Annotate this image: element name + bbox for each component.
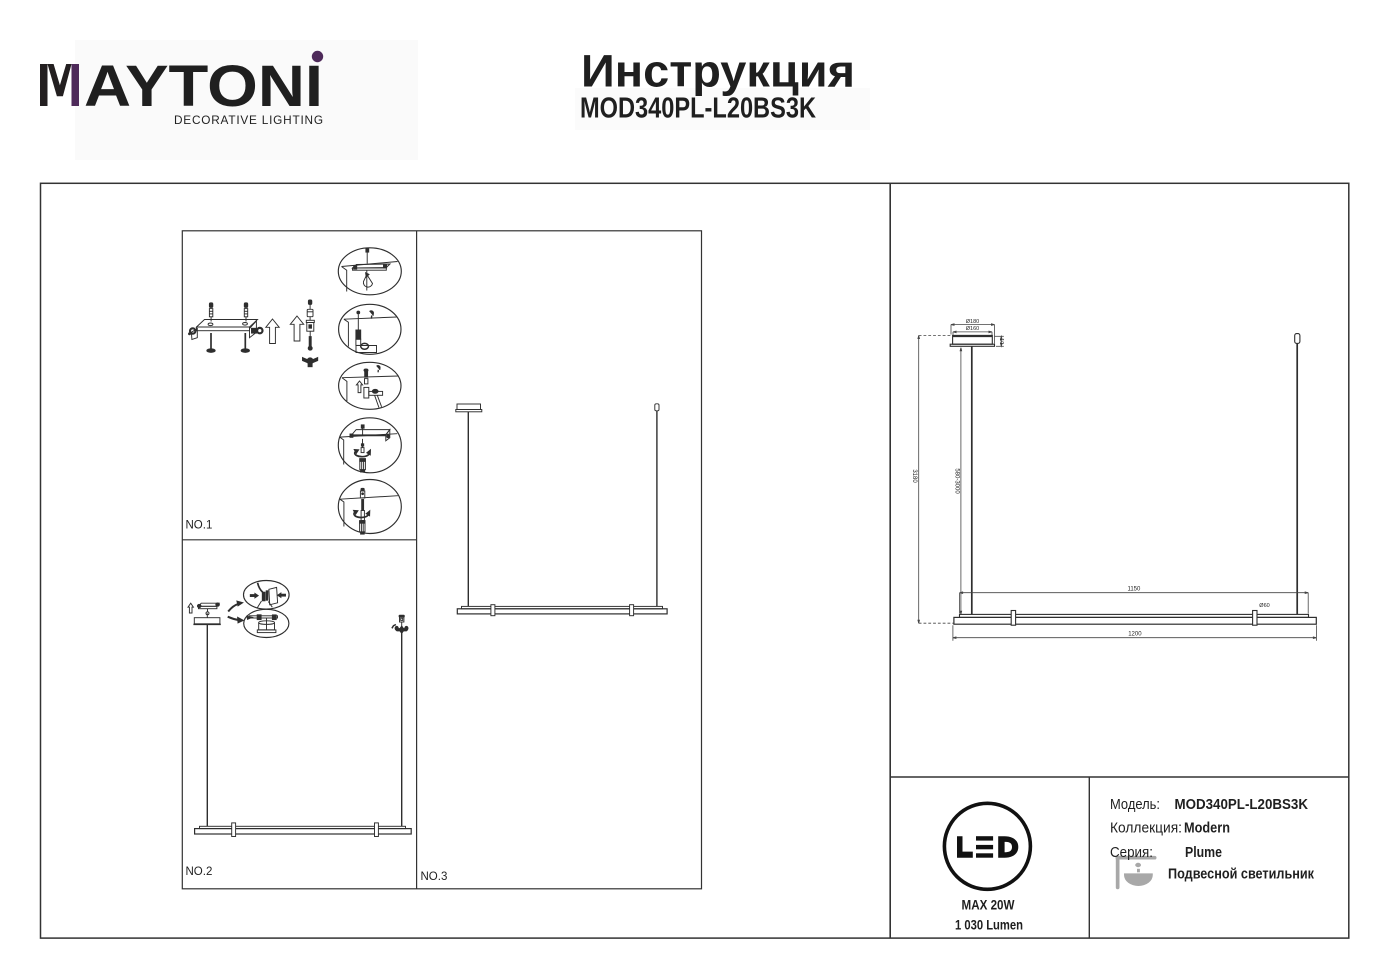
svg-text:3180: 3180 <box>911 469 917 483</box>
svg-text:10: 10 <box>998 338 1004 344</box>
svg-text:Ø160: Ø160 <box>966 326 979 332</box>
svg-text:Modern: Modern <box>1184 821 1230 837</box>
svg-text:MOD340PL-L20BS3K: MOD340PL-L20BS3K <box>1175 797 1309 813</box>
svg-text:NO.1: NO.1 <box>186 520 213 532</box>
svg-text:MOD340PL-L20BS3K: MOD340PL-L20BS3K <box>580 93 816 125</box>
svg-text:Серия:: Серия: <box>1110 845 1153 861</box>
svg-text:1 030 Lumen: 1 030 Lumen <box>955 918 1023 933</box>
svg-text:MAX 20W: MAX 20W <box>962 898 1015 913</box>
svg-text:AYTONI: AYTONI <box>84 54 323 119</box>
svg-text:1150: 1150 <box>1127 586 1141 592</box>
svg-text:Подвесной светильник: Подвесной светильник <box>1168 867 1315 883</box>
svg-text:Инструкция: Инструкция <box>581 46 855 97</box>
svg-text:Plume: Plume <box>1185 845 1222 861</box>
svg-text:Модель:: Модель: <box>1110 797 1160 813</box>
svg-text:Ø60: Ø60 <box>1259 603 1269 609</box>
svg-text:DECORATIVE LIGHTING: DECORATIVE LIGHTING <box>174 113 323 127</box>
svg-text:NO.3: NO.3 <box>421 871 448 883</box>
svg-text:Ø180: Ø180 <box>966 319 979 325</box>
svg-text:Коллекция:: Коллекция: <box>1110 821 1182 837</box>
svg-text:NO.2: NO.2 <box>186 866 213 878</box>
svg-text:1200: 1200 <box>1128 631 1142 637</box>
svg-text:580-3000: 580-3000 <box>953 468 959 494</box>
